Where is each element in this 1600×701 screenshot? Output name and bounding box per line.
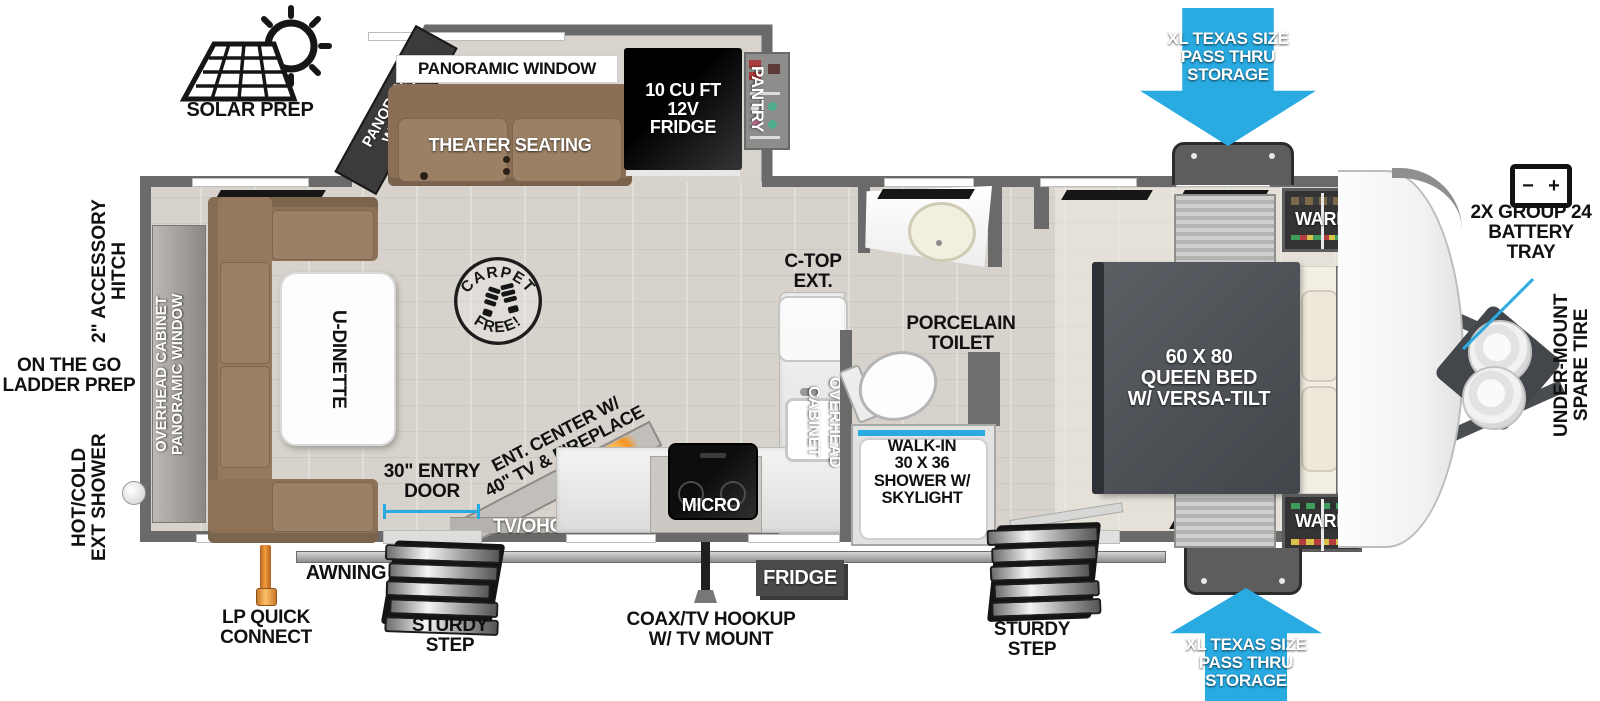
fridge-12v-label: 10 CU FT 12V FRIDGE [645, 81, 721, 138]
entry-door-label: 30" ENTRY DOOR [372, 462, 492, 502]
spare-tire-label: UNDER-MOUNT SPARE TIRE [1552, 282, 1598, 448]
window [368, 32, 565, 41]
lp-quick-connect-label: LP QUICK CONNECT [206, 608, 326, 648]
theater-seating-label: THEATER SEATING [410, 136, 610, 155]
living-wall-cabinet-label: OVERHEAD CABINET PANORAMIC WINDOW [154, 232, 202, 516]
dinette-cushion [220, 262, 270, 364]
fridge-12v-base [626, 170, 740, 176]
fridge-12v: 10 CU FT 12V FRIDGE [624, 48, 742, 170]
walkin-shower-label: WALK-IN 30 X 36 SHOWER W/ SKYLIGHT [854, 438, 990, 507]
dinette-table: U-DINETTE [280, 272, 396, 446]
queen-bed: 60 X 80 QUEEN BED W/ VERSA-TILT [1098, 262, 1300, 494]
entry-door-dimension-line [383, 510, 480, 513]
bedroom-wall-stub [1034, 187, 1049, 229]
ctop-extension [778, 296, 848, 362]
kitchen-overhead-label: OVERHEAD CABINET [800, 366, 844, 478]
theater-cupholder [503, 168, 510, 175]
theater-cupholder [503, 156, 510, 163]
storage-door-top [1172, 142, 1294, 185]
dim-tick [477, 504, 480, 519]
fridge-callout: FRIDGE [756, 560, 844, 596]
bed-pillow [1301, 290, 1339, 382]
ctop-ext-label: C-TOP EXT. [768, 252, 858, 292]
window-glass [1061, 190, 1153, 200]
spare-tire [1462, 366, 1526, 430]
porcelain-toilet-label: PORCELAIN TOILET [898, 314, 1024, 354]
accessory-hitch-label: 2" ACCESSORY HITCH [90, 196, 140, 346]
panoramic-window-top-label: PANORAMIC WINDOW [418, 60, 596, 78]
bedroom-dresser-bottom [1174, 492, 1276, 548]
window-glass [877, 189, 975, 199]
lp-quick-connect-tip [256, 588, 277, 606]
bed-footboard [1092, 262, 1104, 494]
pass-thru-bottom-label: XL TEXAS SIZE PASS THRU STORAGE [1166, 636, 1326, 690]
dinette-cushion [220, 366, 270, 468]
dinette-cushion [272, 482, 374, 532]
bath-linen-block [968, 352, 1000, 426]
battery-minus: − [1522, 175, 1534, 198]
ext-shower-knob [122, 481, 146, 505]
window [566, 534, 656, 543]
bed-pillow [1301, 386, 1339, 472]
coax-hookup-post [701, 542, 710, 592]
ext-shower-label: HOT/COLD EXT SHOWER [70, 432, 116, 562]
storage-door-bottom [1184, 548, 1302, 595]
sturdy-step-2-label: STURDY STEP [980, 620, 1084, 660]
ladder-prep-label: ON THE GO LADDER PREP [0, 356, 138, 396]
floorplan-diagram: SOLAR PREP PANORAMIC WINDOW PANORAMIC WI… [0, 0, 1600, 701]
pass-thru-top-label: XL TEXAS SIZE PASS THRU STORAGE [1146, 30, 1310, 84]
sturdy-step-2 [984, 520, 1101, 624]
bedroom-dresser-top [1174, 194, 1276, 266]
window [748, 534, 840, 543]
sturdy-step-1-label: STURDY STEP [398, 616, 502, 656]
battery-plus: + [1548, 175, 1560, 198]
awning-label: AWNING [296, 563, 396, 584]
window [884, 178, 974, 187]
coax-hookup-label: COAX/TV HOOKUP W/ TV MOUNT [616, 610, 806, 650]
window [192, 178, 309, 187]
dinette-cushion [272, 210, 374, 260]
panoramic-window-top-band: PANORAMIC WINDOW [396, 55, 618, 83]
carpet-free-badge: CARPET FREE! [451, 254, 545, 348]
battery-tray-label: 2X GROUP 24 BATTERY TRAY [1462, 203, 1600, 263]
bath-faucet-dot [936, 240, 942, 246]
fridge-callout-label: FRIDGE [763, 568, 837, 589]
window [1040, 178, 1137, 187]
pantry-label: PANTRY [748, 54, 766, 144]
u-dinette-label: U-DINETTE [328, 310, 348, 409]
dim-tick [383, 504, 386, 519]
theater-cupholder [420, 172, 428, 180]
micro-label: MICRO [668, 496, 754, 515]
queen-bed-label: 60 X 80 QUEEN BED W/ VERSA-TILT [1128, 347, 1270, 410]
